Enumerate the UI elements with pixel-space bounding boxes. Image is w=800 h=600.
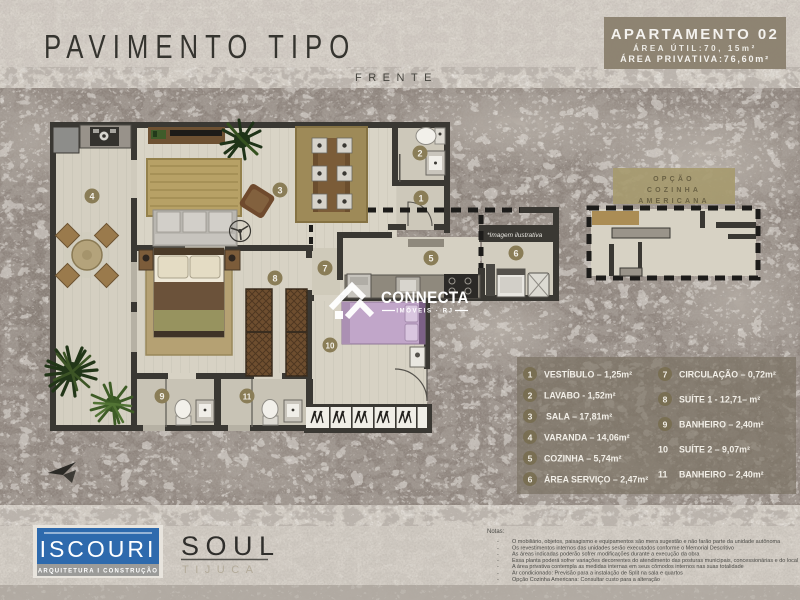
svg-text:10: 10 bbox=[658, 445, 668, 455]
svg-text:1: 1 bbox=[528, 370, 533, 380]
svg-text:SOUL: SOUL bbox=[181, 531, 281, 561]
svg-text:-: - bbox=[497, 577, 499, 583]
svg-text:VARANDA – 14,06m²: VARANDA – 14,06m² bbox=[544, 433, 630, 443]
svg-text:-: - bbox=[497, 571, 499, 577]
svg-text:-: - bbox=[497, 558, 499, 564]
svg-text:-: - bbox=[497, 552, 499, 558]
svg-text:8: 8 bbox=[272, 274, 277, 284]
svg-text:COZINHA: COZINHA bbox=[647, 187, 701, 194]
svg-text:Ar condicionado: Previsão para: Ar condicionado: Previsão para a instala… bbox=[512, 571, 683, 577]
svg-text:SUÍTE 1 - 12,71– m²: SUÍTE 1 - 12,71– m² bbox=[679, 395, 760, 405]
svg-text:COZINHA – 5,74m²: COZINHA – 5,74m² bbox=[544, 454, 621, 464]
svg-text:IMÓVEIS · RJ: IMÓVEIS · RJ bbox=[396, 307, 453, 315]
svg-text:4: 4 bbox=[89, 192, 94, 202]
svg-text:Os revestimentos internos das: Os revestimentos internos das unidades s… bbox=[512, 545, 734, 551]
svg-text:CIRCULAÇÃO – 0,72m²: CIRCULAÇÃO – 0,72m² bbox=[679, 370, 776, 380]
svg-text:4: 4 bbox=[528, 433, 533, 443]
svg-text:PAVIMENTO TIPO: PAVIMENTO TIPO bbox=[44, 29, 356, 66]
svg-text:5: 5 bbox=[528, 454, 533, 464]
svg-text:OPÇÃO: OPÇÃO bbox=[653, 174, 695, 183]
svg-text:ÁREA PRIVATIVA:76,60m²: ÁREA PRIVATIVA:76,60m² bbox=[620, 54, 770, 64]
svg-text:BANHEIRO – 2,40m²: BANHEIRO – 2,40m² bbox=[679, 470, 764, 480]
svg-text:Essa planta poderá sofrer vari: Essa planta poderá sofrer variações deco… bbox=[512, 558, 798, 564]
svg-text:3: 3 bbox=[528, 412, 533, 422]
svg-text:As áreas indicadas poderão sof: As áreas indicadas poderão sofrer modifi… bbox=[512, 552, 700, 558]
svg-text:SUÍTE 2 – 9,07m²: SUÍTE 2 – 9,07m² bbox=[679, 445, 750, 455]
svg-text:10: 10 bbox=[326, 342, 335, 351]
svg-text:A área privativa contempla as: A área privativa contempla as medidas in… bbox=[512, 564, 744, 570]
svg-text:6: 6 bbox=[513, 249, 518, 259]
svg-text:8: 8 bbox=[663, 395, 668, 405]
svg-text:LAVABO - 1,52m²: LAVABO - 1,52m² bbox=[544, 391, 616, 401]
svg-text:APARTAMENTO 02: APARTAMENTO 02 bbox=[611, 26, 780, 43]
svg-text:7: 7 bbox=[322, 264, 327, 274]
svg-text:7: 7 bbox=[663, 370, 668, 380]
svg-text:SALA – 17,81m²: SALA – 17,81m² bbox=[546, 412, 612, 422]
svg-text:1: 1 bbox=[418, 194, 423, 204]
svg-text:-: - bbox=[497, 539, 499, 545]
svg-text:2: 2 bbox=[528, 391, 533, 401]
svg-text:VESTÍBULO – 1,25m²: VESTÍBULO – 1,25m² bbox=[544, 370, 632, 380]
svg-text:O mobiliário, objetos, paisagi: O mobiliário, objetos, paisagismo e equi… bbox=[512, 539, 781, 545]
svg-text:11: 11 bbox=[243, 393, 252, 402]
svg-text:TIJUCA: TIJUCA bbox=[182, 564, 260, 576]
svg-text:-: - bbox=[497, 564, 499, 570]
svg-text:ARQUITETURA I CONSTRUÇÃO: ARQUITETURA I CONSTRUÇÃO bbox=[38, 568, 158, 575]
svg-text:9: 9 bbox=[159, 392, 164, 402]
svg-text:ÁREA ÚTIL:70, 15m²: ÁREA ÚTIL:70, 15m² bbox=[633, 44, 757, 53]
svg-text:3: 3 bbox=[277, 186, 282, 196]
svg-text:Opção Cozinha Americana: Consu: Opção Cozinha Americana: Consultar custo… bbox=[512, 577, 660, 583]
svg-text:ISCOURI: ISCOURI bbox=[40, 536, 157, 562]
svg-text:9: 9 bbox=[663, 420, 668, 430]
svg-text:-: - bbox=[497, 545, 499, 551]
svg-text:5: 5 bbox=[428, 254, 433, 264]
svg-text:AMERICANA: AMERICANA bbox=[638, 198, 710, 205]
svg-text:CONNECTA: CONNECTA bbox=[381, 289, 469, 307]
svg-text:6: 6 bbox=[528, 475, 533, 485]
svg-text:2: 2 bbox=[417, 149, 422, 159]
svg-text:BANHEIRO – 2,40m²: BANHEIRO – 2,40m² bbox=[679, 420, 764, 430]
svg-text:*Imagem ilustrativa: *Imagem ilustrativa bbox=[487, 232, 543, 239]
svg-text:ÁREA SERVIÇO – 2,47m²: ÁREA SERVIÇO – 2,47m² bbox=[544, 475, 648, 485]
svg-text:11: 11 bbox=[658, 470, 668, 480]
svg-text:FRENTE: FRENTE bbox=[355, 72, 438, 84]
svg-text:Notas:: Notas: bbox=[487, 529, 505, 535]
